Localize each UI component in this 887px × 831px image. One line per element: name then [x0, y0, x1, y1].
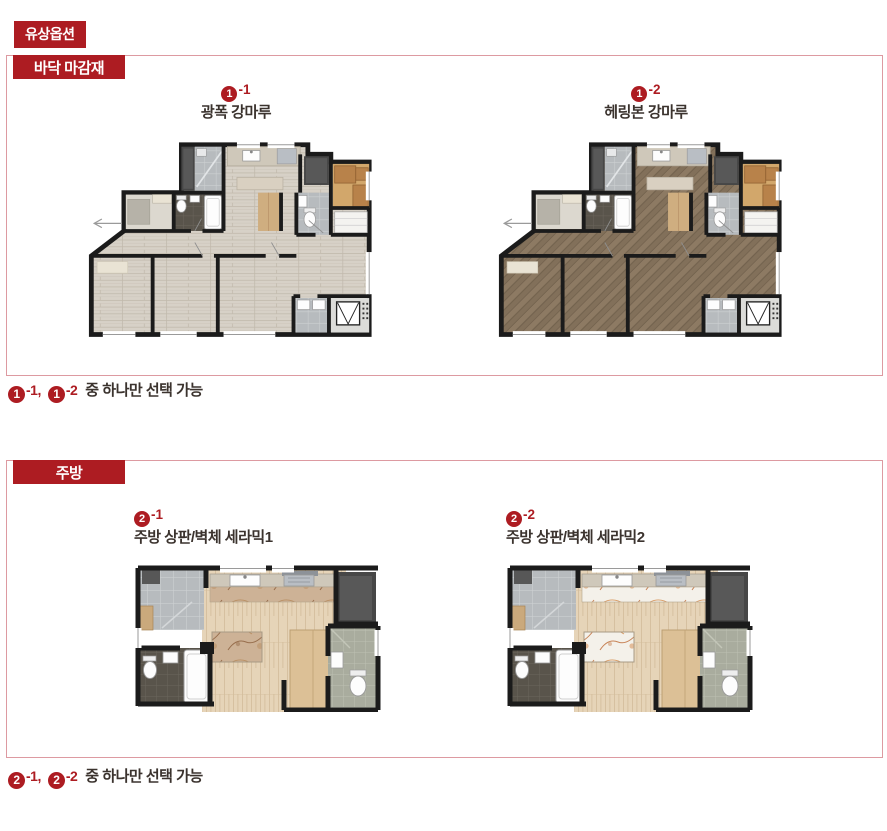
note-number-suffix: -2 [66, 768, 77, 784]
section-floor-finish-title-badge: 바닥 마감재 [13, 55, 125, 79]
option-number-suffix: -1 [238, 82, 250, 97]
option-number: 2-1 [134, 505, 384, 525]
option-number-circle: 2 [506, 511, 522, 527]
option-number-circle: 1 [221, 86, 237, 102]
floorplan-herringbone [481, 139, 811, 345]
note-number-circle: 2 [48, 772, 65, 789]
option-number-circle: 2 [134, 511, 150, 527]
note-floor-select-one: 1-1,1-2중 하나만 선택 가능 [8, 380, 203, 400]
kitchenplan-svg [134, 564, 384, 712]
option-number-circle: 1 [631, 86, 647, 102]
note-text: 중 하나만 선택 가능 [85, 768, 202, 785]
option-label: 광폭 강마루 [71, 103, 401, 123]
option-number: 2-2 [506, 505, 756, 525]
floorplan-svg [481, 139, 811, 345]
option-number-suffix: -2 [648, 82, 660, 97]
option-number: 1-2 [481, 80, 811, 100]
option-floor-1-1: 1-1 광폭 강마루 [71, 80, 401, 345]
paid-options-badge: 유상옵션 [14, 21, 86, 48]
note-number-suffix: -1, [26, 382, 41, 398]
note-number-circle: 2 [8, 772, 25, 789]
note-kitchen-select-one: 2-1,2-2중 하나만 선택 가능 [8, 766, 203, 786]
option-number-suffix: -1 [151, 507, 163, 522]
floorplan-wide-plank [71, 139, 401, 345]
section-kitchen-title-badge: 주방 [13, 460, 125, 484]
option-floor-1-2: 1-2 헤링본 강마루 [481, 80, 811, 345]
note-text: 중 하나만 선택 가능 [85, 382, 202, 399]
note-number-circle: 1 [8, 386, 25, 403]
floorplan-svg [71, 139, 401, 345]
option-label: 주방 상판/벽체 세라믹1 [134, 528, 384, 548]
section-kitchen: 주방 2-1 주방 상판/벽체 세라믹1 [6, 460, 883, 758]
kitchenplan-svg [506, 564, 756, 712]
option-kitchen-2-1: 2-1 주방 상판/벽체 세라믹1 [134, 505, 384, 712]
kitchenplan-ceramic2 [506, 564, 756, 712]
note-number-circle: 1 [48, 386, 65, 403]
option-label: 헤링본 강마루 [481, 103, 811, 123]
kitchenplan-ceramic1 [134, 564, 384, 712]
note-number-suffix: -2 [66, 382, 77, 398]
option-number-suffix: -2 [523, 507, 535, 522]
option-kitchen-2-2: 2-2 주방 상판/벽체 세라믹2 [506, 505, 756, 712]
section-floor-finish: 바닥 마감재 1-1 광폭 강마루 [6, 55, 883, 376]
option-number: 1-1 [71, 80, 401, 100]
note-number-suffix: -1, [26, 768, 41, 784]
option-label: 주방 상판/벽체 세라믹2 [506, 528, 756, 548]
